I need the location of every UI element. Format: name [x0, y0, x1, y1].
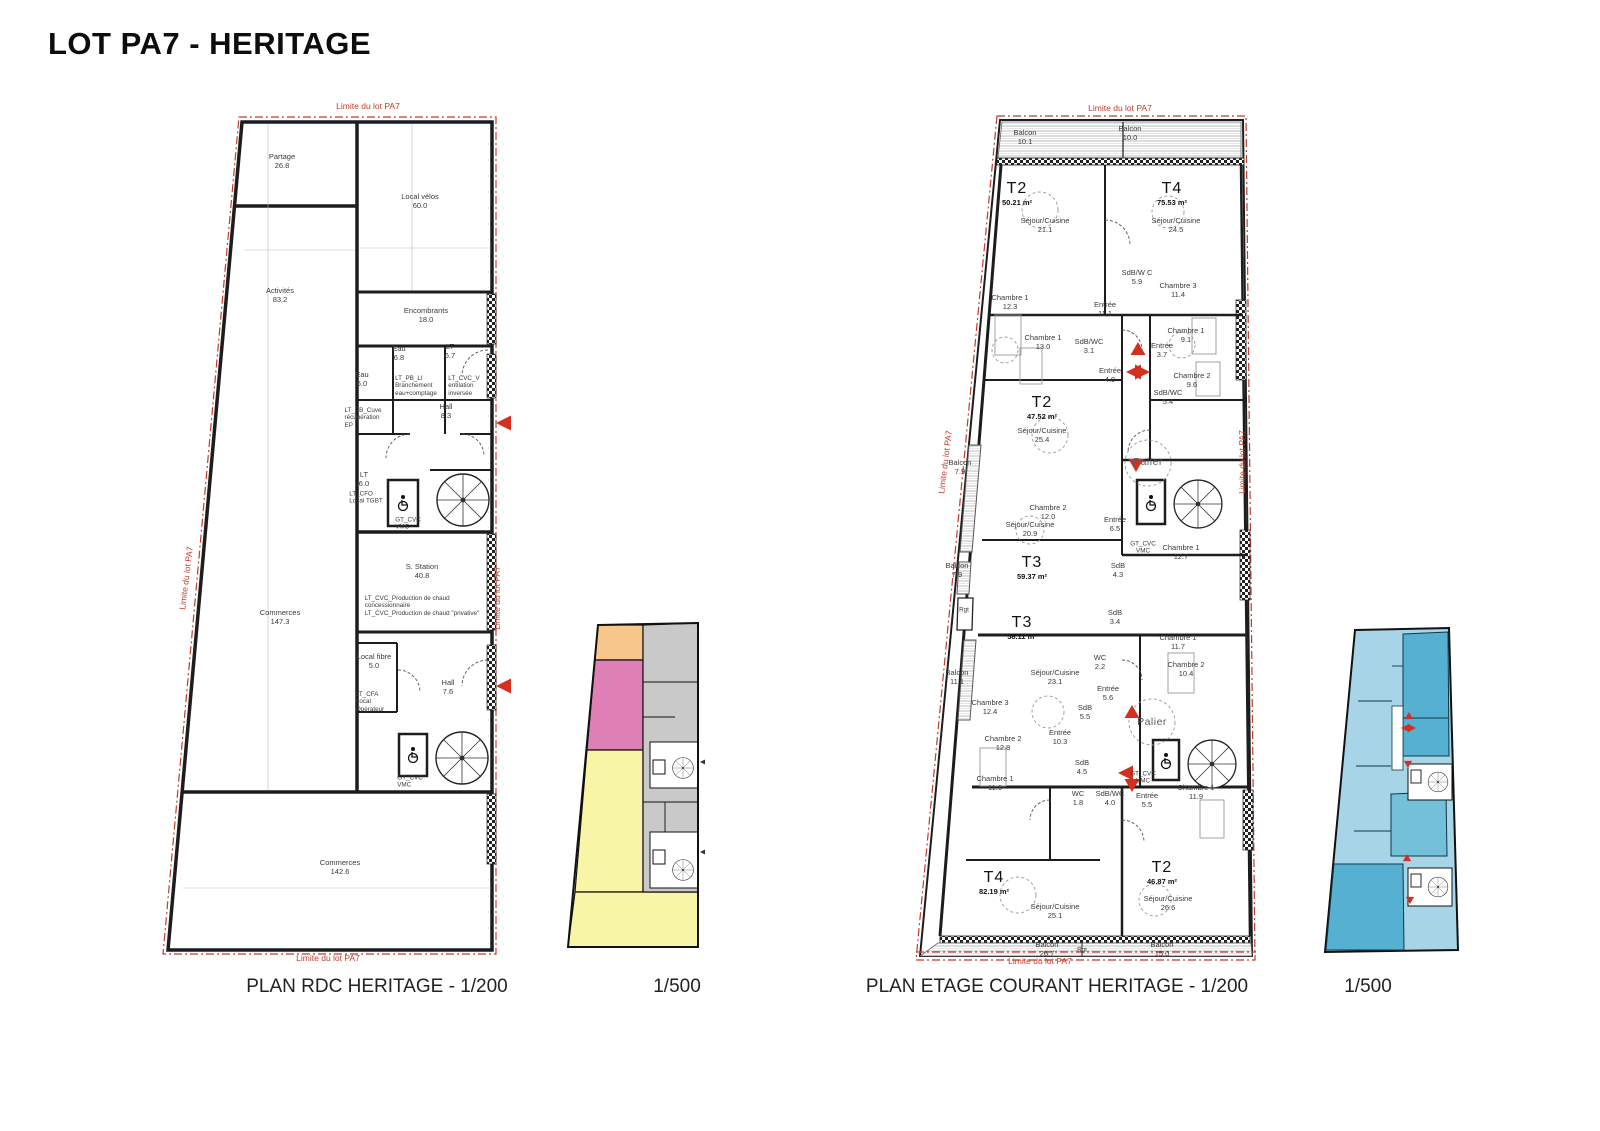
entree-d-label: Entrée6.5: [1104, 516, 1126, 534]
sdb-h-label: SdB/WC4.0: [1096, 790, 1125, 808]
caption-plan-etage: PLAN ETAGE COURANT HERITAGE - 1/200: [866, 976, 1248, 998]
entree-e-label: Entrée5.6: [1097, 685, 1119, 703]
balcon-3-label: Balcon7.9: [949, 459, 972, 477]
chambre1-g-label: Chambre 111.9: [1177, 784, 1214, 802]
boundary-top-label: Limite du lot PA7: [336, 101, 400, 111]
room-gt-cvc-1-label: GT_CVCVMC: [395, 517, 421, 532]
balcon-5-label: Balcon11.1: [946, 669, 969, 687]
entree-g-label: Entrée5.5: [1136, 792, 1158, 810]
room-partage-label: Partage26.8: [269, 153, 295, 171]
palier-1-label: Palier: [1133, 456, 1163, 468]
key-plan-rdc: [555, 602, 705, 950]
note-production-chaud-label: LT_CVC_Production de chaudconcessionnair…: [365, 595, 480, 617]
sdb-a-label: SdB/W C5.9: [1122, 269, 1153, 287]
room-lt-cvc-vi-label: LT_CVC_Ventilationinversée: [448, 375, 479, 397]
room-lt-1-label: LT6.7: [445, 343, 455, 361]
key-corridor: [1392, 706, 1403, 770]
room-gt-cvc-2-label: GT_CVCVMC: [397, 775, 423, 790]
key-zone-blue-mid: [1391, 792, 1447, 856]
sejour-cuisine-f-label: Séjour/Cuisine25.1: [1031, 903, 1080, 921]
sdb-f-label: SdB5.5: [1078, 704, 1092, 722]
caption-key-etage: 1/500: [1344, 976, 1392, 998]
chambre2-c-label: Chambre 210.4: [1167, 661, 1204, 679]
boundary-left-label: Limite du lot PA7: [177, 546, 195, 610]
room-eau-1-label: Eau6.8: [392, 345, 405, 363]
boundary-right-label: Limite du lot PA7: [492, 566, 502, 630]
sejour-cuisine-b-label: Séjour/Cuisine24.5: [1152, 217, 1201, 235]
chambre1-b-label: Chambre 113.0: [1024, 334, 1061, 352]
sdb-e-label: SdB3.4: [1108, 609, 1122, 627]
etage-labels-layer: Balcon10.1Balcon10.0T250.21 m²Séjour/Cui…: [900, 100, 1265, 980]
caption-plan-rdc: PLAN RDC HERITAGE - 1/200: [246, 976, 508, 998]
room-local-velos-label: Local vélos60.0: [401, 193, 439, 211]
caption-key-rdc: 1/500: [653, 976, 701, 998]
sdb-c-label: SdB/WC5.4: [1154, 389, 1183, 407]
elevator-shaft: [1411, 770, 1421, 783]
key-zone-blue-dark: [1403, 632, 1449, 756]
entree-a-label: Entrée11.1: [1094, 301, 1116, 319]
sdb-g-label: SdB4.5: [1075, 759, 1089, 777]
room-lt-cfo-label: LT_CFOLocal TGBT: [349, 491, 382, 506]
sheet-title: LOT PA7 - HERITAGE: [48, 26, 371, 62]
rgt-b-label: Rgt: [1077, 946, 1087, 953]
entree-c-label: Entrée4.0: [1099, 367, 1121, 385]
key-zone-blue-dark: [1326, 864, 1404, 950]
apt-t2-c-label: T246.87 m²: [1147, 859, 1177, 887]
elevator-shaft: [653, 850, 665, 864]
sejour-cuisine-g-label: Séjour/Cuisine26.6: [1144, 895, 1193, 913]
balcon-1-label: Balcon10.1: [1014, 129, 1037, 147]
chambre1-c-label: Chambre 19.1: [1167, 327, 1204, 345]
wc-b-label: WC1.8: [1072, 790, 1085, 808]
chambre1-e-label: Chambre 111.7: [1159, 634, 1196, 652]
room-hall-1-label: Hall8.3: [440, 403, 453, 421]
gt-cvc-a-label: GT_CVCVMC: [1130, 541, 1156, 556]
boundary-bottom-label: Limite du lot PA7: [296, 953, 360, 963]
chambre1-a-label: Chambre 112.3: [991, 294, 1028, 312]
room-lt-cfa-label: LT_CFALocalOpérateur: [356, 691, 384, 713]
sejour-cuisine-c-label: Séjour/Cuisine25.4: [1018, 427, 1067, 445]
spiral-stair-icon: [673, 860, 694, 881]
room-commerces-2-label: Commerces142.6: [320, 859, 360, 877]
room-activites-label: Activités83.2: [266, 287, 294, 305]
apt-t3-a-label: T359.37 m²: [1017, 554, 1047, 582]
room-lt-pb-li-label: LT_PB_LIBranchementeau+comptage: [395, 375, 437, 397]
sdb-b-label: SdB/WC3.1: [1075, 338, 1104, 356]
key-plan-etage-drawing: [1295, 606, 1470, 954]
key-zone-yellow: [568, 892, 698, 947]
boundary-top-label: Limite du lot PA7: [1088, 103, 1152, 113]
room-local-fibre-label: Local fibre5.0: [357, 653, 392, 671]
entry-arrow-icon: [700, 848, 705, 856]
entry-arrow-icon: [700, 758, 705, 766]
chambre2-d-label: Chambre 212.8: [984, 735, 1021, 753]
boundary-bottom-label: Limite du lot PA7: [1008, 956, 1072, 966]
room-hall-2-label: Hall7.6: [442, 679, 455, 697]
boundary-right-label: Limite du lot PA7: [1237, 430, 1247, 494]
gt-cvc-b-label: GT_CVCVMC: [1130, 771, 1156, 786]
chambre1-f-label: Chambre 111.6: [976, 775, 1013, 793]
sdb-d-label: SdB4.3: [1111, 562, 1125, 580]
chambre3-b-label: Chambre 312.4: [971, 699, 1008, 717]
plan-rdc: Partage26.8Local vélos60.0Activités83.2E…: [150, 100, 522, 970]
sejour-cuisine-d-label: Séjour/Cuisine20.9: [1006, 521, 1055, 539]
floorplan-sheet: LOT PA7 - HERITAGE: [0, 0, 1600, 1131]
apt-t2-a-label: T250.21 m²: [1002, 180, 1032, 208]
elevator-shaft: [653, 760, 665, 774]
wc-a-label: WC2.2: [1094, 654, 1107, 672]
entree-f-label: Entrée10.3: [1049, 729, 1071, 747]
room-lt-pb-cuve-label: LT_PB_CuverécupérationEP: [345, 407, 382, 429]
room-lt-2-label: LT6.0: [359, 471, 369, 489]
balcon-4-label: Balcon7.9: [946, 562, 969, 580]
rgt-a-label: Rgt: [959, 606, 969, 613]
spiral-stair-icon: [1428, 772, 1448, 792]
palier-2-label: Palier: [1137, 716, 1167, 728]
room-eau-2-label: Eau6.0: [355, 371, 368, 389]
key-plan-rdc-drawing: [555, 602, 705, 950]
chambre1-d-label: Chambre 112.7: [1162, 544, 1199, 562]
plan-etage-courant: Balcon10.1Balcon10.0T250.21 m²Séjour/Cui…: [900, 100, 1265, 980]
spiral-stair-icon: [1428, 877, 1448, 897]
key-zone-pink: [587, 660, 643, 750]
apt-t2-b-label: T247.52 m²: [1027, 394, 1057, 422]
key-plan-etage: [1295, 606, 1470, 954]
chambre3-a-label: Chambre 311.4: [1159, 282, 1196, 300]
apt-t3-b-label: T358.11 m²: [1007, 614, 1037, 642]
sejour-cuisine-a-label: Séjour/Cuisine21.1: [1021, 217, 1070, 235]
sejour-cuisine-e-label: Séjour/Cuisine23.1: [1031, 669, 1080, 687]
room-encombrants-label: Encombrants18.0: [404, 307, 448, 325]
balcon-2-label: Balcon10.0: [1119, 125, 1142, 143]
balcon-7-label: Balcon15.0: [1151, 941, 1174, 959]
room-commerces-1-label: Commerces147.3: [260, 609, 300, 627]
room-s-station-label: S. Station40.8: [406, 563, 439, 581]
apt-t4-b-label: T482.19 m²: [979, 869, 1009, 897]
elevator-shaft: [1411, 874, 1421, 887]
rdc-labels-layer: Partage26.8Local vélos60.0Activités83.2E…: [150, 100, 522, 970]
key-zone-orange: [595, 625, 643, 660]
apt-t4-a-label: T475.53 m²: [1157, 180, 1187, 208]
spiral-stair-icon: [673, 758, 694, 779]
